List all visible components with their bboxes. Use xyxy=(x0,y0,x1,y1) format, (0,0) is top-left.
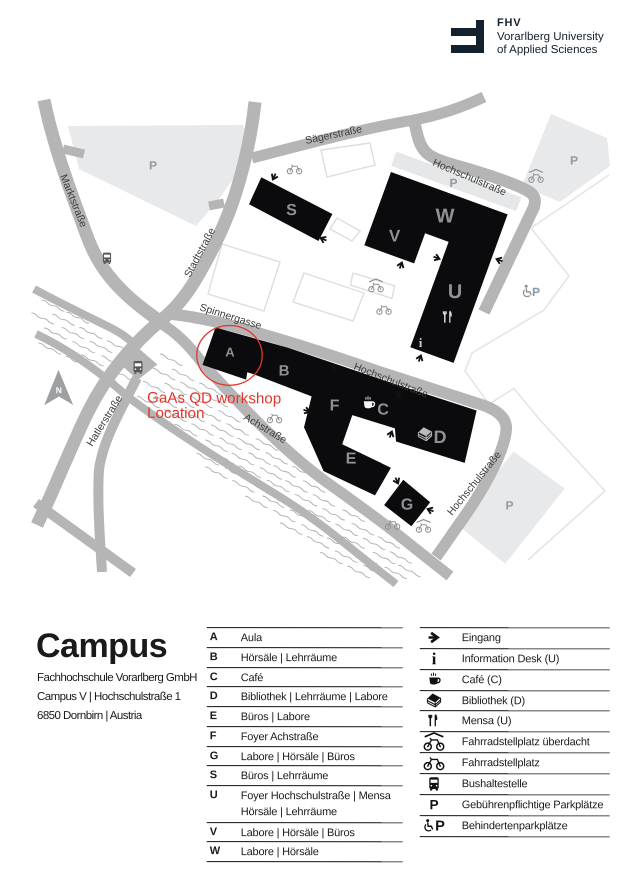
svg-text:i: i xyxy=(432,649,437,668)
svg-text:P: P xyxy=(435,819,445,835)
svg-text:P: P xyxy=(429,797,438,812)
